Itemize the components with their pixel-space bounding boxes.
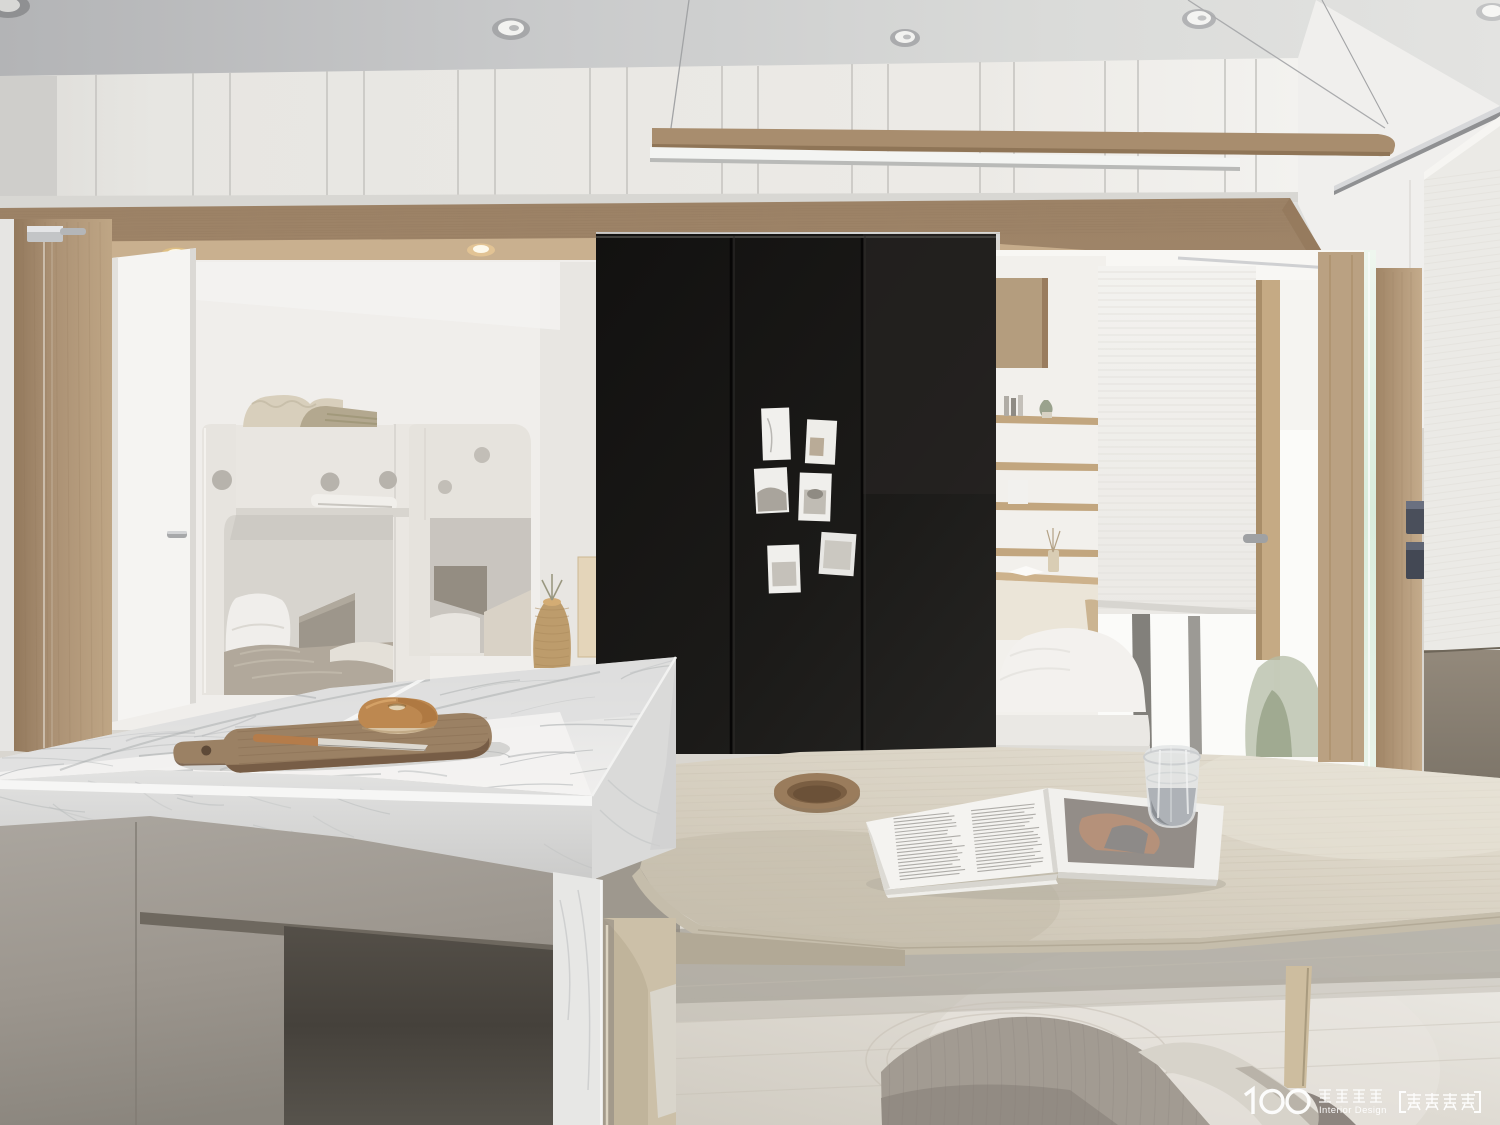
svg-text:Interior Design: Interior Design <box>1319 1105 1387 1116</box>
